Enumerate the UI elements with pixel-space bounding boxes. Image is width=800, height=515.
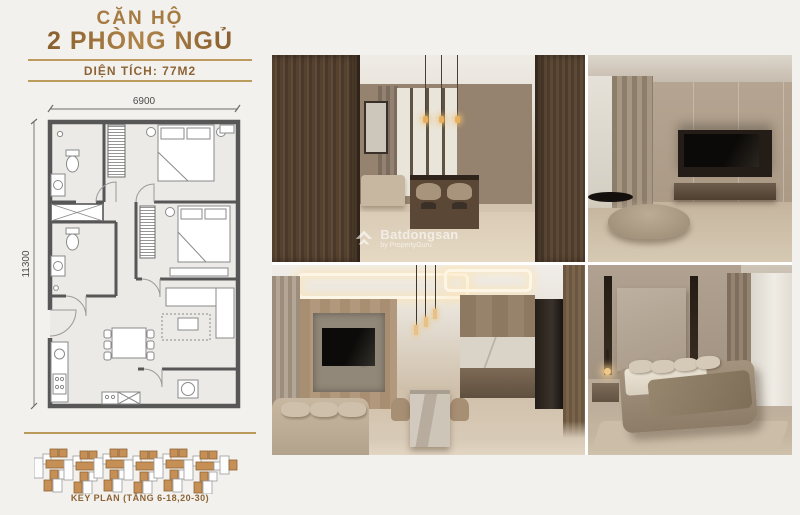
sofa — [361, 175, 405, 206]
plan-dining — [104, 328, 154, 360]
pendant-light — [441, 55, 442, 117]
photo-bedroom — [588, 265, 792, 455]
pendant-light — [425, 265, 426, 322]
area-label: DIỆN TÍCH: 77M2 — [20, 64, 260, 78]
dimension-width-label: 6900 — [133, 96, 156, 107]
kitchen-cabinets — [460, 295, 535, 337]
wall-art — [364, 101, 387, 155]
cove-ceiling-light — [444, 269, 532, 292]
wall-sconce — [606, 349, 609, 371]
key-plan-drawing — [34, 448, 246, 494]
side-table — [588, 192, 633, 202]
pendant-light — [425, 55, 426, 117]
sheer-curtain — [588, 76, 615, 208]
kitchen-counter — [460, 368, 535, 398]
plan-wardrobe1 — [108, 125, 125, 177]
wood-column — [535, 55, 585, 262]
area-divider-top — [28, 59, 252, 61]
area-divider-bottom — [28, 80, 252, 82]
ottoman — [608, 204, 690, 239]
photo-living-bar: Batdongsan by PropertyGuru — [272, 55, 585, 262]
dining-chair — [450, 398, 469, 421]
curtain — [612, 76, 653, 208]
dimension-left: 11300 — [21, 119, 37, 409]
photo-grid: Batdongsan by PropertyGuru — [272, 55, 792, 455]
pendant-light — [457, 55, 458, 117]
television — [322, 328, 375, 366]
dining-chair — [391, 398, 410, 421]
photo-living-dining-kitchen — [272, 265, 585, 455]
watermark-brand: Batdongsan — [380, 227, 458, 242]
dimension-top: 6900 — [48, 96, 240, 112]
key-plan — [34, 448, 246, 492]
padded-panel — [617, 288, 686, 372]
bar-stool — [447, 183, 472, 200]
keyplan-caption: KEY PLAN (TẦNG 6-18,20-30) — [20, 493, 260, 503]
watermark-byline: by PropertyGuru — [380, 242, 458, 249]
sofa-cushion — [310, 402, 338, 417]
plan-shaft-closet — [51, 204, 103, 221]
bar-counter — [410, 175, 479, 229]
media-console — [674, 183, 776, 200]
floor-plan-drawing: 6900 11300 — [20, 92, 260, 424]
pendant-light — [416, 265, 417, 330]
batdongsan-logo-icon — [353, 227, 375, 249]
sofa-cushion — [281, 402, 309, 417]
dining-table — [410, 390, 451, 447]
pendant-light — [435, 265, 436, 314]
wood-panel-wall — [272, 55, 360, 262]
photo-tv-lounge — [588, 55, 792, 262]
dimension-height-label: 11300 — [21, 250, 32, 278]
television — [684, 134, 759, 167]
floor-plan: 6900 11300 — [20, 92, 260, 430]
sofa-cushion — [338, 402, 366, 417]
bar-stool — [416, 183, 441, 200]
curtain — [272, 276, 300, 413]
refrigerator — [535, 299, 563, 409]
keyplan-divider — [24, 432, 256, 434]
plan-wardrobe2 — [140, 206, 155, 258]
nightstand — [592, 383, 619, 402]
apartment-title-line2: 2 PHÒNG NGỦ — [20, 27, 260, 56]
watermark: Batdongsan by PropertyGuru — [353, 227, 458, 249]
left-panel: CĂN HỘ 2 PHÒNG NGỦ DIỆN TÍCH: 77M2 6900 — [20, 0, 260, 515]
marble-backsplash — [460, 337, 535, 367]
